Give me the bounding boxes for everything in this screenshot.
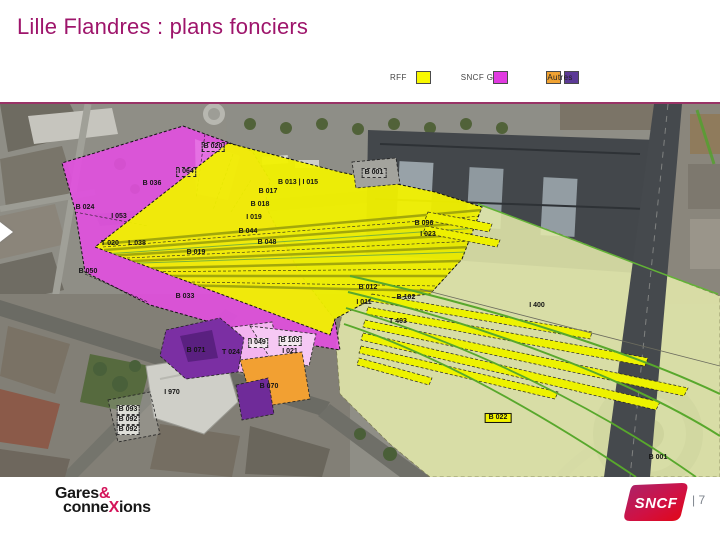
parcel-label: B 096	[415, 220, 434, 228]
footer: Gares& conneXions SNCF | 7	[0, 477, 720, 540]
parcel-label: B 050	[79, 268, 98, 276]
parcel-label: B 001	[649, 454, 668, 462]
parcel-label: I 019	[246, 214, 262, 222]
legend-label: RFF	[390, 73, 407, 82]
connexions-logo-text-2: ions	[119, 499, 151, 516]
parcel-label: B 048	[258, 239, 277, 247]
map-area: B 020I 064B 036B 024I 053B 013 | I 015B …	[0, 102, 720, 477]
page-title: Lille Flandres : plans fonciers	[17, 14, 308, 40]
parcel-labels-layer: B 020I 064B 036B 024I 053B 013 | I 015B …	[0, 104, 720, 477]
parcel-label: B 070	[260, 383, 279, 391]
parcel-label: B 024	[76, 204, 95, 212]
legend-item-autres: Autres	[546, 71, 579, 84]
connexions-logo-x: X	[109, 499, 119, 516]
sncf-logo-text: SNCF	[635, 495, 678, 512]
parcel-label: B 103	[279, 336, 302, 346]
page-number: | 7	[692, 493, 705, 507]
parcel-label: T 024	[222, 349, 240, 357]
legend-label: Autres	[547, 73, 573, 82]
parcel-label: B 017	[259, 188, 278, 196]
parcel-label: B 022	[485, 413, 512, 423]
parcel-label: B 019	[187, 249, 206, 257]
parcel-label: B 033	[176, 293, 195, 301]
legend-swatch	[416, 71, 431, 84]
parcel-label: B 013 | I 015	[278, 179, 318, 187]
parcel-label: B 036	[143, 180, 162, 188]
parcel-label: B 092	[117, 415, 140, 425]
parcel-label: B 071	[187, 347, 206, 355]
sncf-logo: SNCF	[623, 482, 689, 522]
parcel-label: I 021	[282, 348, 298, 356]
parcel-label: L 038	[128, 240, 146, 248]
legend-item-sncf-gc: SNCF G&C	[461, 71, 509, 84]
parcel-label: T 020	[101, 240, 119, 248]
parcel-label: B 012	[359, 284, 378, 292]
left-edge-arrow-icon	[0, 222, 13, 242]
parcel-label: I 970	[164, 389, 180, 397]
parcel-label: T 403	[389, 318, 407, 326]
connexions-logo-text-1: conne	[63, 499, 109, 516]
parcel-label: I 400	[529, 302, 545, 310]
parcel-label: B 001	[362, 168, 387, 178]
parcel-label: B 020	[202, 142, 225, 152]
legend-item-rff: RFF	[390, 71, 431, 84]
gares-connexions-logo: Gares& conneXions	[55, 486, 151, 516]
parcel-label: I 064	[176, 167, 196, 177]
parcel-label: I 049	[248, 338, 268, 348]
parcel-label: I 023	[420, 231, 436, 239]
parcel-label: B 018	[251, 201, 270, 209]
parcel-label: B 092	[117, 425, 140, 435]
parcel-label: I 053	[111, 213, 127, 221]
map-legend: RFFSNCF G&CAutres	[390, 71, 579, 84]
parcel-label: B 093	[117, 405, 140, 415]
parcel-label: I 011	[356, 299, 371, 307]
legend-swatch	[493, 71, 508, 84]
parcel-label: B 102	[397, 294, 416, 302]
parcel-label: B 044	[239, 228, 258, 236]
